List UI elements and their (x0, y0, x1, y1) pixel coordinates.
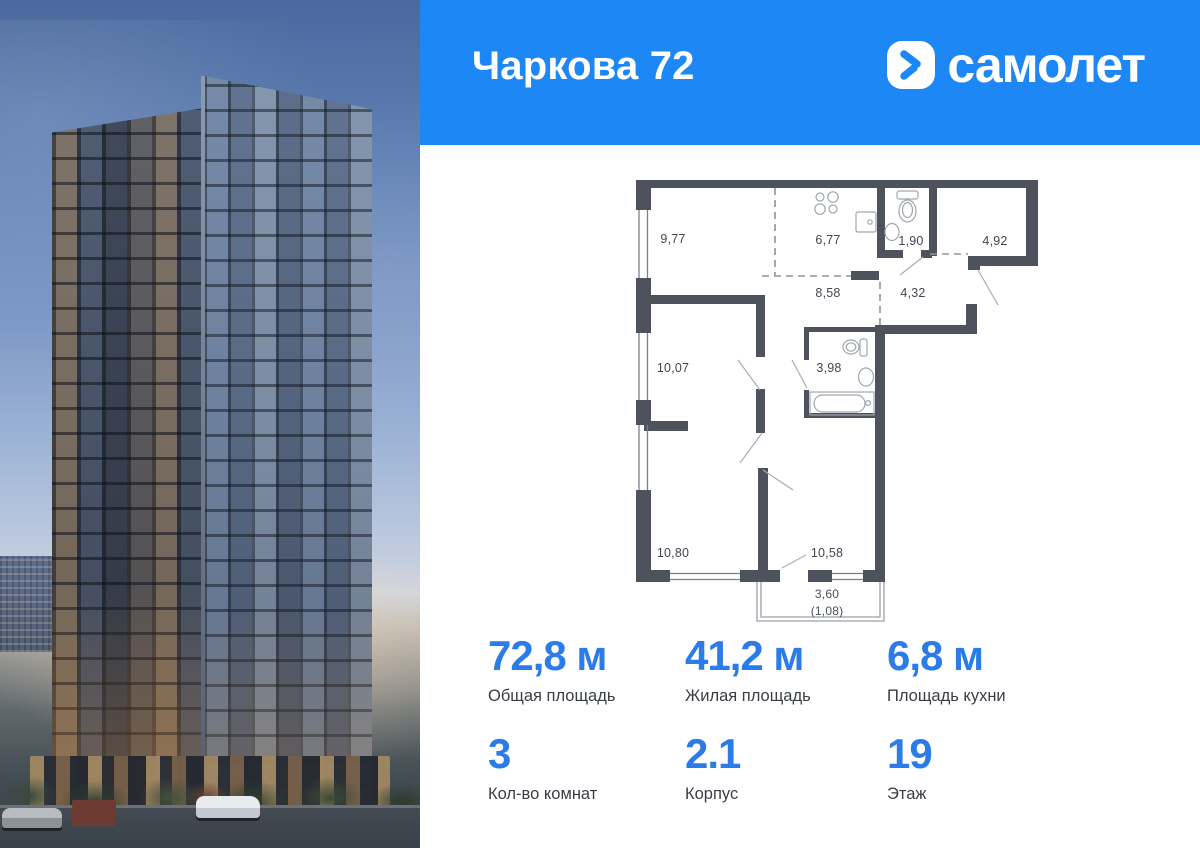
stat-value: 2.1 (685, 734, 885, 774)
room-area-label: 10,58 (811, 546, 843, 560)
room-area-label: 3,98 (816, 361, 841, 375)
room-area-label: 10,80 (657, 546, 689, 560)
stat-value: 3 (488, 734, 688, 774)
bathroom-fixtures (810, 339, 874, 415)
tower-facade-right (204, 76, 372, 812)
stat-label: Корпус (685, 785, 885, 804)
stat-label: Этаж (887, 785, 1087, 804)
samolet-logo: самолет (887, 40, 1145, 90)
tower-corner-edge (201, 76, 205, 812)
room-area-label: 9,77 (660, 232, 685, 246)
dashed-zone-boundaries (762, 188, 968, 325)
stat-rooms-count: 3 Кол-во комнат (488, 734, 688, 804)
room-area-label: 4,92 (982, 234, 1007, 248)
room-area-label: 1,90 (898, 234, 923, 248)
stat-label: Кол-во комнат (488, 785, 688, 804)
car (196, 796, 260, 818)
stat-living-area: 41,2 м Жилая площадь (685, 636, 885, 706)
stat-kitchen-area: 6,8 м Площадь кухни (887, 636, 1087, 706)
room-area-label: 4,32 (900, 286, 925, 300)
apartment-listing-card: Чаркова 72 самолет (0, 0, 1200, 848)
stat-value: 6,8 м (887, 636, 1087, 676)
project-title: Чаркова 72 (472, 44, 695, 88)
door-swings (738, 257, 998, 568)
stat-value: 41,2 м (685, 636, 885, 676)
samolet-logo-icon (887, 41, 935, 89)
header: Чаркова 72 самолет (420, 0, 1200, 145)
stat-floor: 19 Этаж (887, 734, 1087, 804)
stat-value: 72,8 м (488, 636, 688, 676)
stat-total-area: 72,8 м Общая площадь (488, 636, 688, 706)
kitchen-fixtures (815, 192, 876, 232)
building-photo (0, 0, 420, 848)
room-area-label: 10,07 (657, 361, 689, 375)
stat-value: 19 (887, 734, 1087, 774)
car (2, 808, 62, 828)
stat-building: 2.1 Корпус (685, 734, 885, 804)
kiosk (72, 800, 116, 826)
samolet-logo-text: самолет (947, 40, 1145, 90)
stat-label: Общая площадь (488, 687, 688, 706)
stat-label: Жилая площадь (685, 687, 885, 706)
balcony-area-label: 3,60 (815, 587, 839, 601)
room-area-label: 6,77 (815, 233, 840, 247)
tower-facade-left (52, 108, 204, 810)
balcony-reduced-area-label: (1,08) (811, 604, 844, 618)
room-area-label: 8,58 (815, 286, 840, 300)
stat-label: Площадь кухни (887, 687, 1087, 706)
floor-plan: 9,77 6,77 1,90 4,92 8,58 4,32 10,07 3,98… (620, 170, 1040, 625)
